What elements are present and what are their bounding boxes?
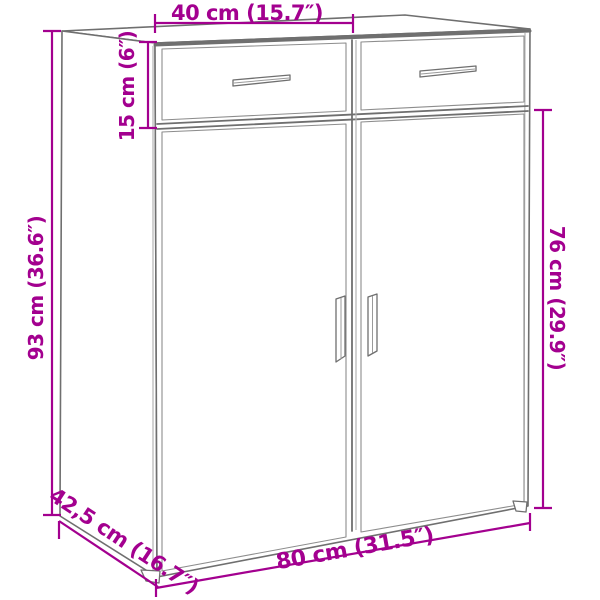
right-door-front	[361, 114, 524, 532]
dimension-label-door-section-height: 76 cm (29.9″)	[545, 226, 569, 371]
front-right-foot	[513, 501, 527, 512]
dimension-diagram: 40 cm (15.7″) 15 cm (6″) 93 cm (36.6″)	[0, 0, 600, 600]
dimension-total-height: 93 cm (36.6″)	[24, 31, 61, 515]
right-door-handle	[368, 294, 377, 356]
dimension-label-drawer-section-height: 15 cm (6″)	[115, 31, 139, 142]
dimension-label-total-height: 93 cm (36.6″)	[24, 216, 48, 361]
left-door-handle	[336, 296, 345, 362]
diagram-canvas: 40 cm (15.7″) 15 cm (6″) 93 cm (36.6″)	[0, 0, 600, 600]
dimension-door-section-height: 76 cm (29.9″)	[534, 110, 569, 508]
dimension-label-top-section-width: 40 cm (15.7″)	[171, 1, 323, 25]
left-door-front	[162, 124, 346, 571]
